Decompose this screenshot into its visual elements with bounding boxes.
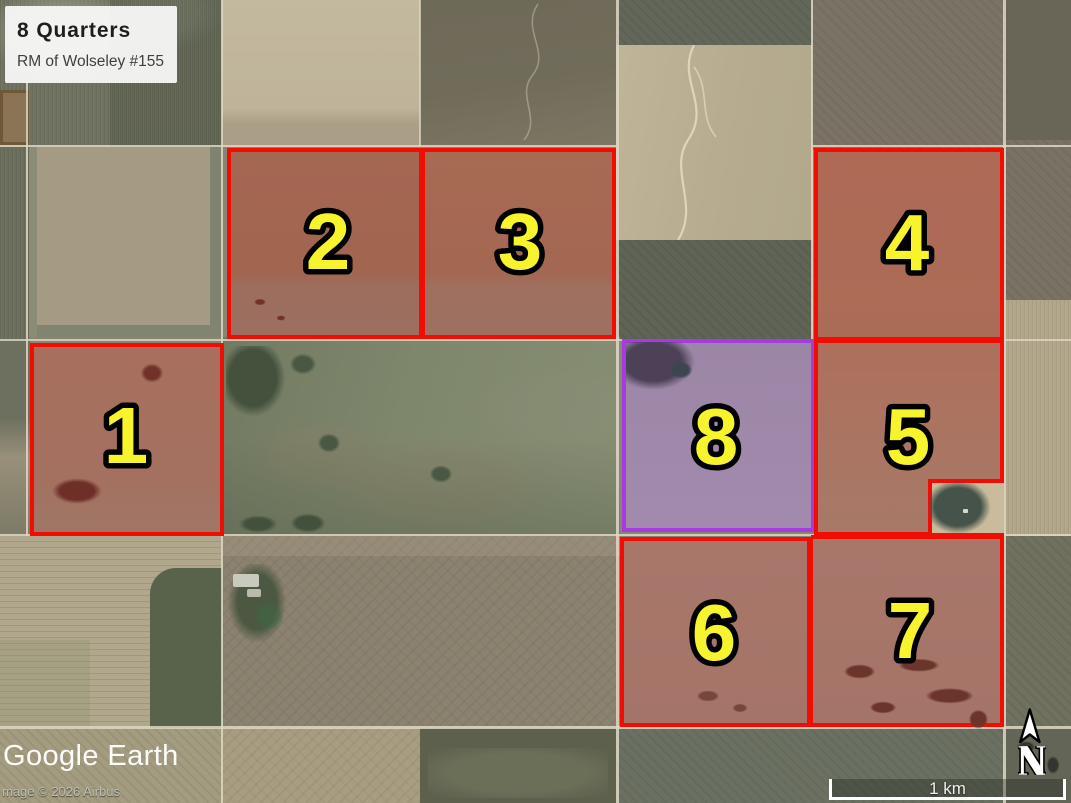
- svg-text:5: 5: [886, 392, 931, 481]
- svg-text:6: 6: [692, 588, 737, 677]
- svg-text:4: 4: [885, 198, 930, 287]
- svg-text:2: 2: [306, 197, 351, 286]
- svg-text:3: 3: [498, 197, 543, 286]
- svg-text:7: 7: [888, 586, 933, 675]
- svg-text:8: 8: [694, 392, 739, 481]
- svg-text:1: 1: [104, 391, 149, 480]
